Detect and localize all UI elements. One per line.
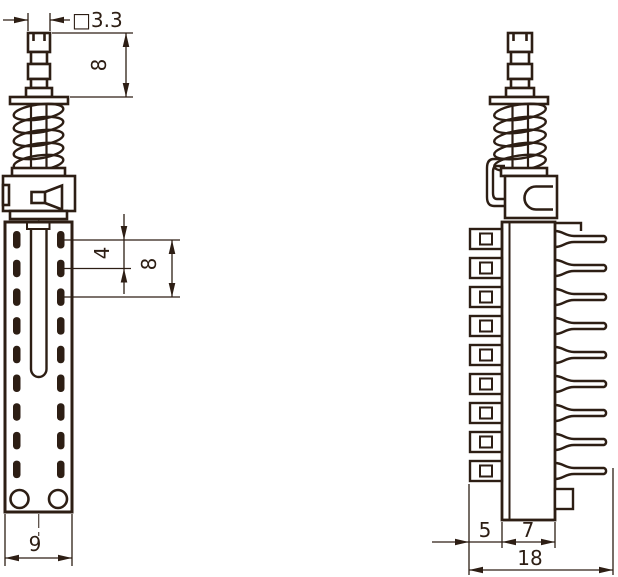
dim-body-depth: 7 xyxy=(522,518,535,542)
dim-plunger-square-width: □3.3 xyxy=(72,8,123,32)
dim-slot-pitch: 4 xyxy=(90,247,114,260)
spring xyxy=(13,101,65,174)
dim-overall-depth: 18 xyxy=(517,546,542,570)
dim-body-width: 9 xyxy=(29,532,42,556)
terminal-clips xyxy=(470,229,502,481)
flange xyxy=(10,97,68,104)
housing-block xyxy=(3,168,75,219)
mounting-hole xyxy=(49,490,67,508)
front-view: □3.3 8 4 8 9 xyxy=(3,8,180,566)
housing-block-side xyxy=(501,168,557,218)
spring-side xyxy=(493,101,547,174)
dimension-plunger-square xyxy=(3,13,70,31)
plunger-side xyxy=(506,33,534,97)
dim-slot-pitch-double: 8 xyxy=(137,258,161,271)
plunger xyxy=(26,33,52,97)
technical-drawing: □3.3 8 4 8 9 xyxy=(0,0,618,577)
side-view: 5 7 18 xyxy=(432,33,613,575)
body-tube xyxy=(5,222,72,512)
latch-hook xyxy=(487,159,505,206)
dim-plunger-height: 8 xyxy=(87,59,111,72)
mounting-hole xyxy=(11,490,29,508)
dimension-slot-pitch xyxy=(64,214,180,297)
bottom-tab xyxy=(555,489,573,509)
dim-clip-depth: 5 xyxy=(479,518,492,542)
terminal-pins xyxy=(555,231,606,479)
drawing-canvas: □3.3 8 4 8 9 xyxy=(0,0,618,577)
flange-side xyxy=(490,97,548,104)
